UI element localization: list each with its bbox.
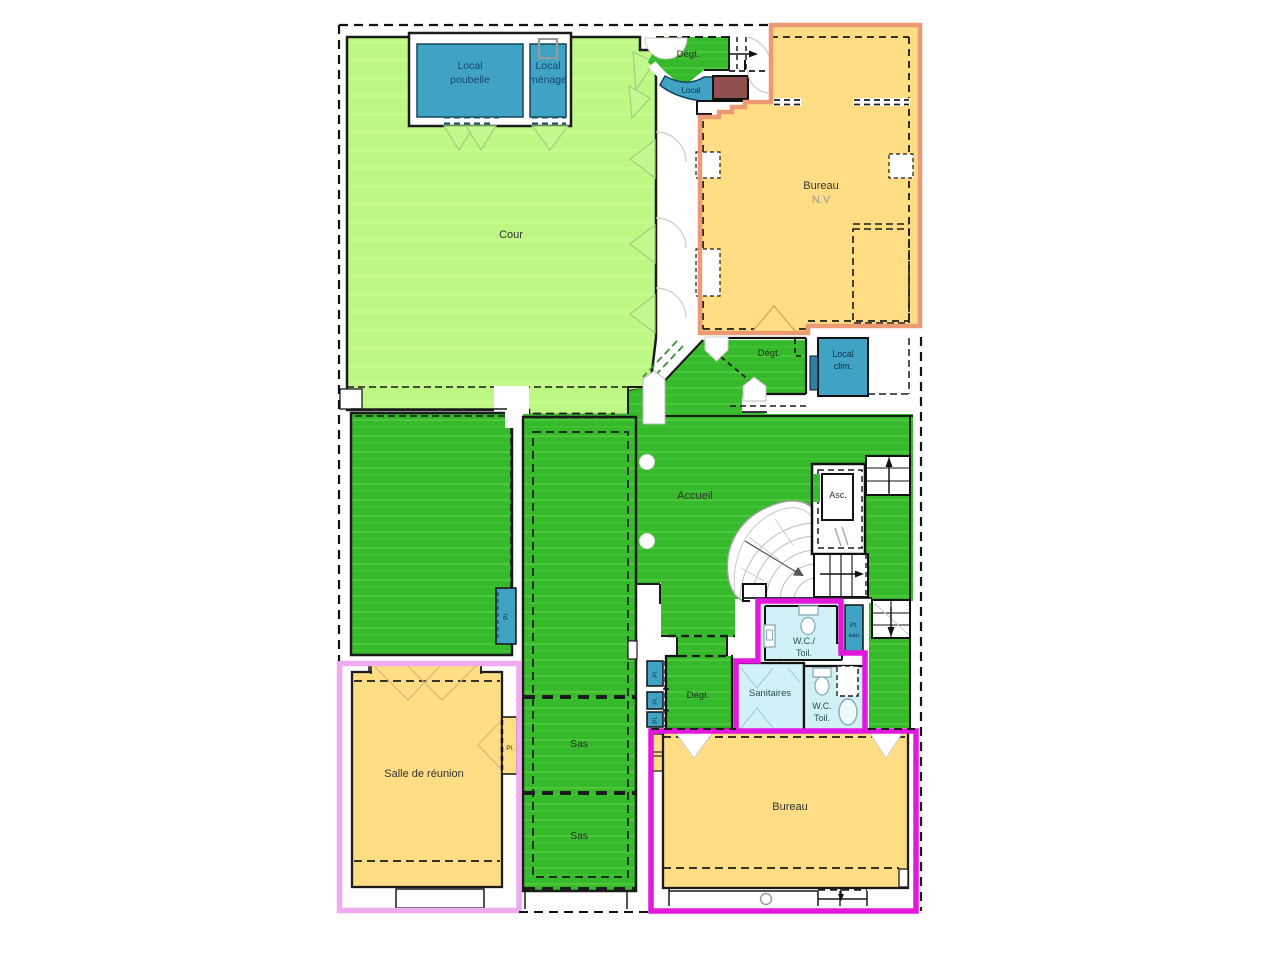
- svg-text:eau: eau: [849, 632, 860, 639]
- svg-text:Local: Local: [681, 86, 700, 95]
- svg-text:poubelle: poubelle: [450, 74, 490, 86]
- svg-text:Toil.: Toil.: [814, 713, 830, 723]
- svg-text:Dégt.: Dégt.: [758, 348, 781, 359]
- svg-text:Cour: Cour: [499, 229, 523, 241]
- svg-text:Local: Local: [535, 60, 560, 72]
- svg-text:Dégt.: Dégt.: [677, 49, 700, 60]
- svg-text:Accueil: Accueil: [677, 490, 712, 502]
- svg-text:Pl.: Pl.: [652, 670, 659, 678]
- svg-text:Pl.: Pl.: [503, 612, 510, 620]
- svg-text:N.V: N.V: [812, 194, 831, 206]
- svg-text:Pl.: Pl.: [652, 697, 659, 705]
- svg-text:Pl.: Pl.: [506, 745, 514, 752]
- svg-text:Local: Local: [457, 60, 482, 72]
- svg-text:Asc.: Asc.: [829, 490, 847, 500]
- svg-text:Local: Local: [832, 349, 854, 359]
- svg-text:Salle de réunion: Salle de réunion: [384, 768, 464, 780]
- svg-text:Sanitaires: Sanitaires: [749, 688, 791, 699]
- svg-text:W.C.: W.C.: [812, 701, 832, 711]
- svg-text:Sas: Sas: [570, 738, 588, 750]
- svg-text:Toil.: Toil.: [796, 648, 812, 658]
- svg-text:Pl.: Pl.: [652, 716, 659, 724]
- svg-text:Bureau: Bureau: [772, 801, 807, 813]
- svg-text:Pt.: Pt.: [850, 622, 858, 629]
- svg-text:Sas: Sas: [570, 830, 588, 842]
- svg-text:ménage: ménage: [529, 74, 567, 86]
- svg-text:clim.: clim.: [834, 361, 853, 371]
- svg-text:W.C./: W.C./: [793, 636, 815, 646]
- svg-text:Bureau: Bureau: [803, 180, 838, 192]
- svg-text:Dégt.: Dégt.: [687, 690, 710, 701]
